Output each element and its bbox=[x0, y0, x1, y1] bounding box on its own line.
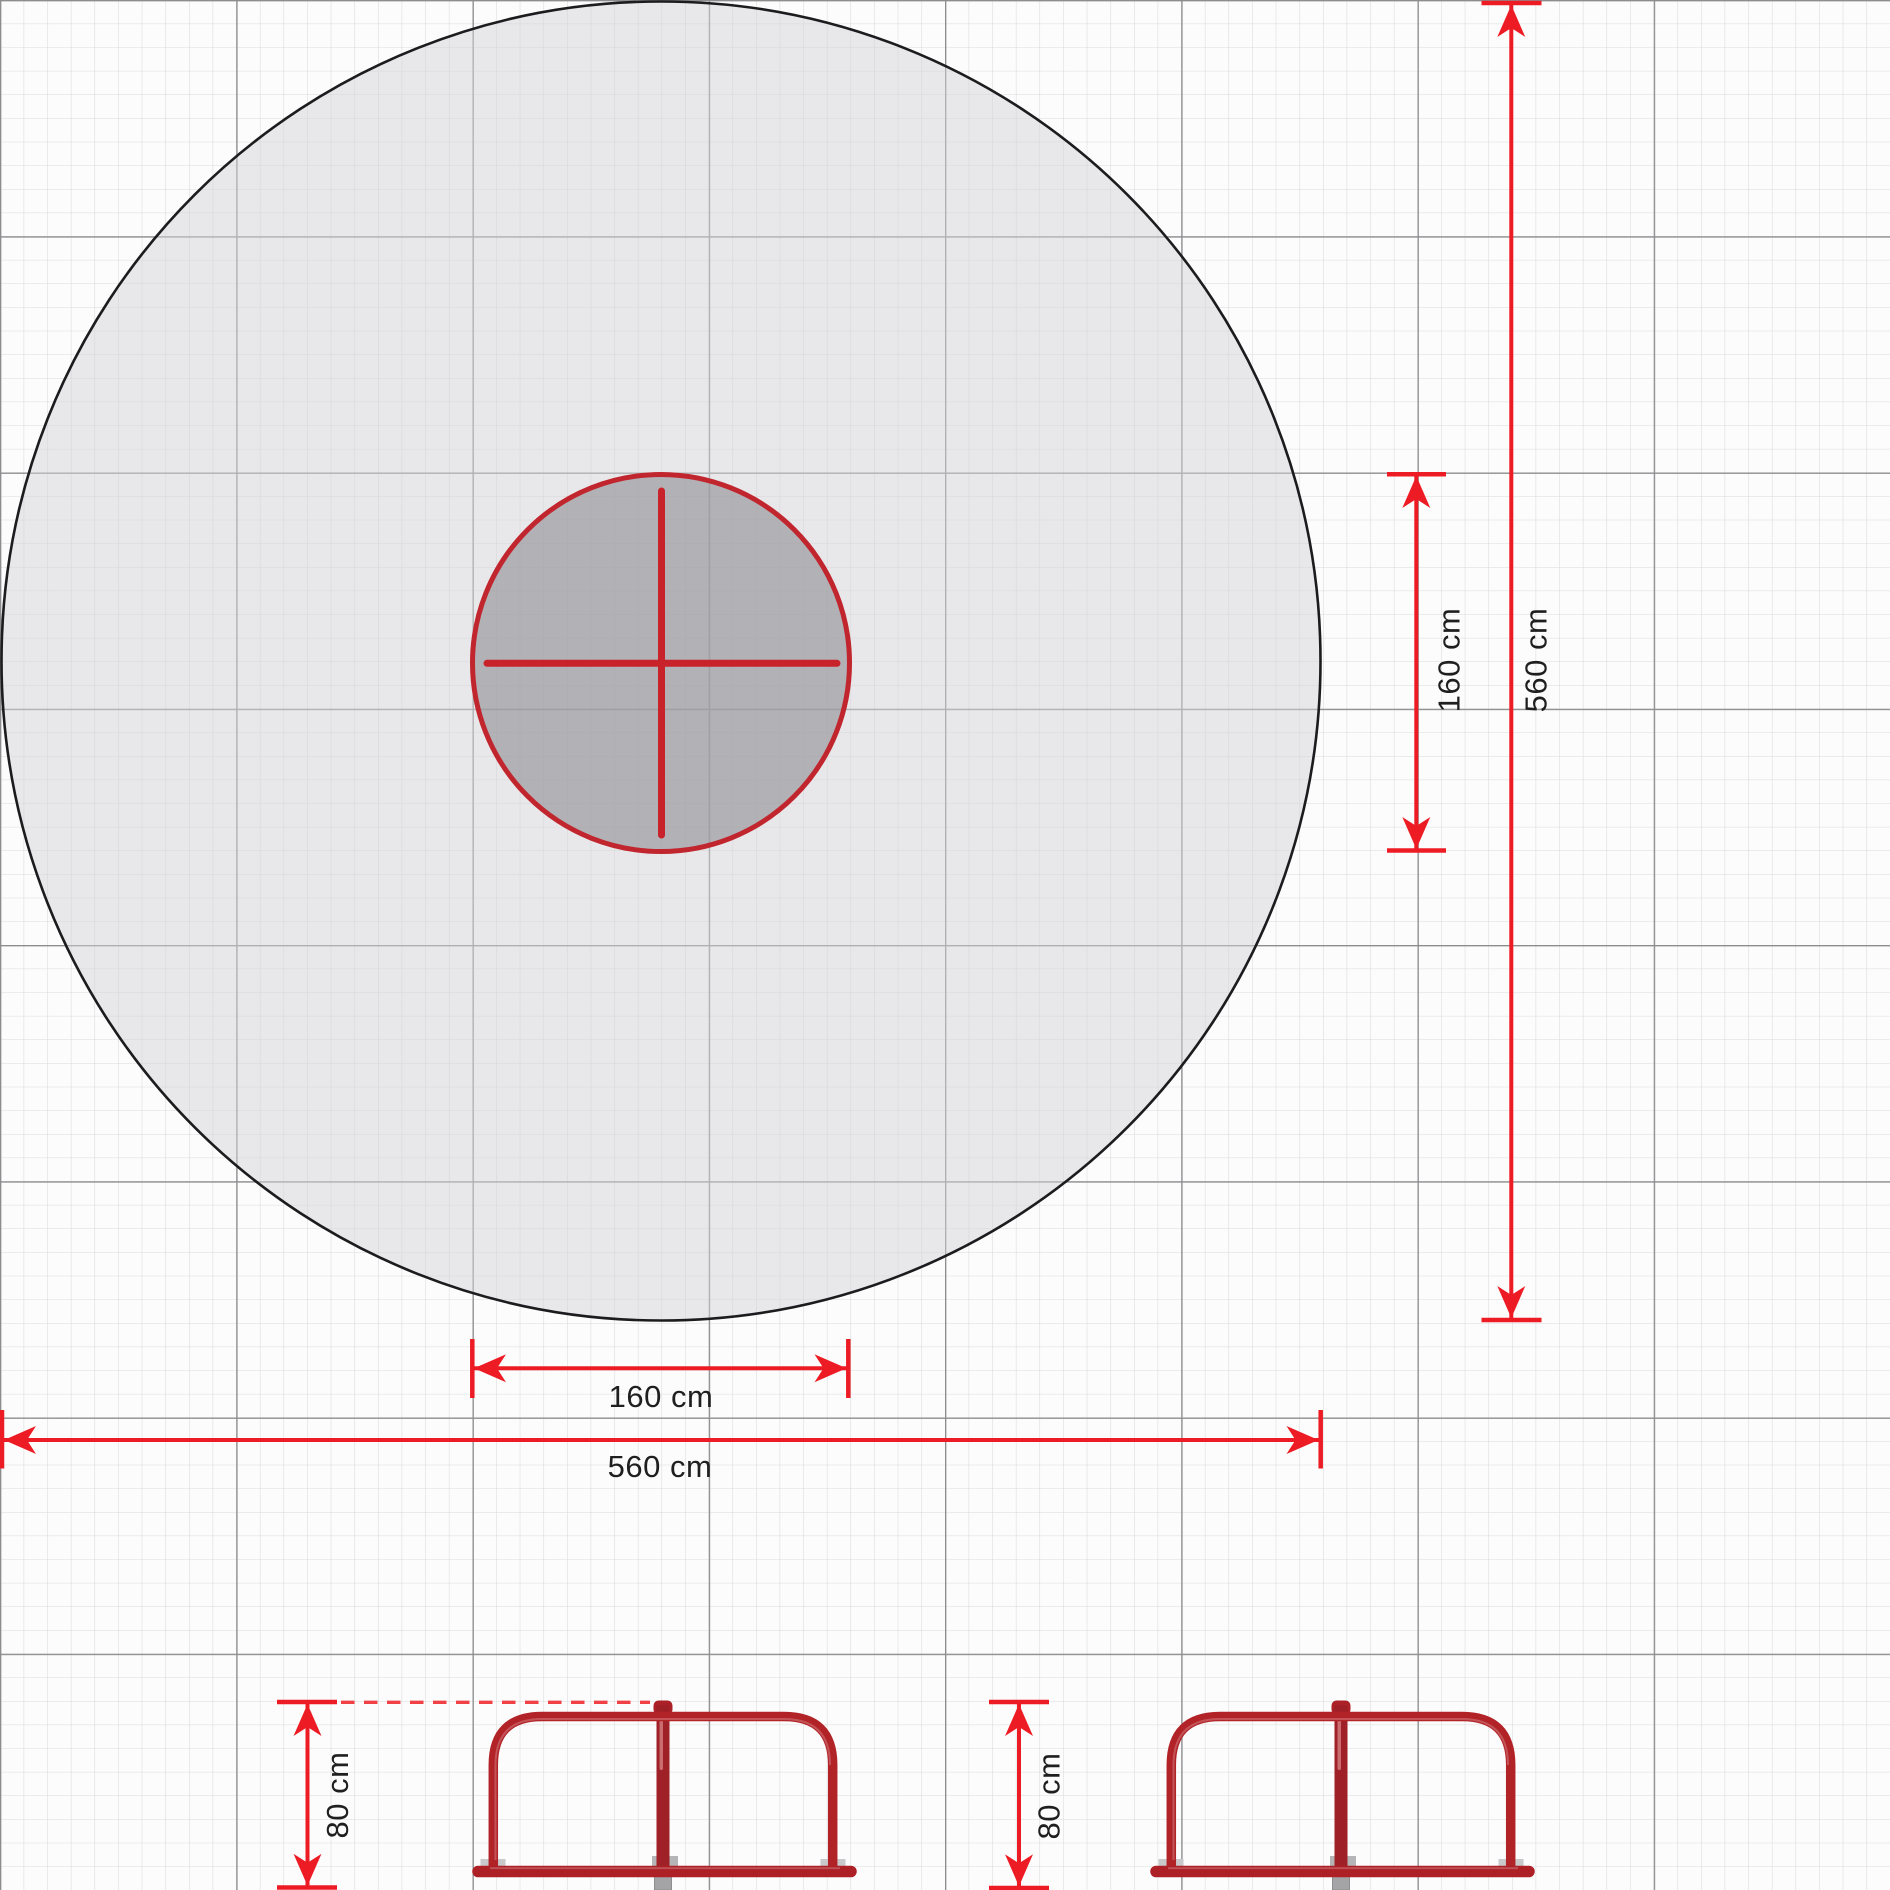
dimension-label-equipment-width: 160 cm bbox=[609, 1379, 714, 1414]
carousel-plan-drawing: 160 cm 560 cm 160 cm 560 cm 80 cm 80 cm bbox=[0, 0, 1890, 1890]
dimension-label-height-right: 80 cm bbox=[1032, 1753, 1067, 1840]
dimension-label-safety-zone-height: 560 cm bbox=[1519, 608, 1554, 713]
dimension-label-equipment-height: 160 cm bbox=[1432, 608, 1467, 713]
dimension-label-height-left: 80 cm bbox=[320, 1752, 355, 1839]
technical-drawing-canvas: 160 cm 560 cm 160 cm 560 cm 80 cm 80 cm bbox=[0, 0, 1890, 1890]
dimension-label-safety-zone-width: 560 cm bbox=[608, 1449, 713, 1484]
